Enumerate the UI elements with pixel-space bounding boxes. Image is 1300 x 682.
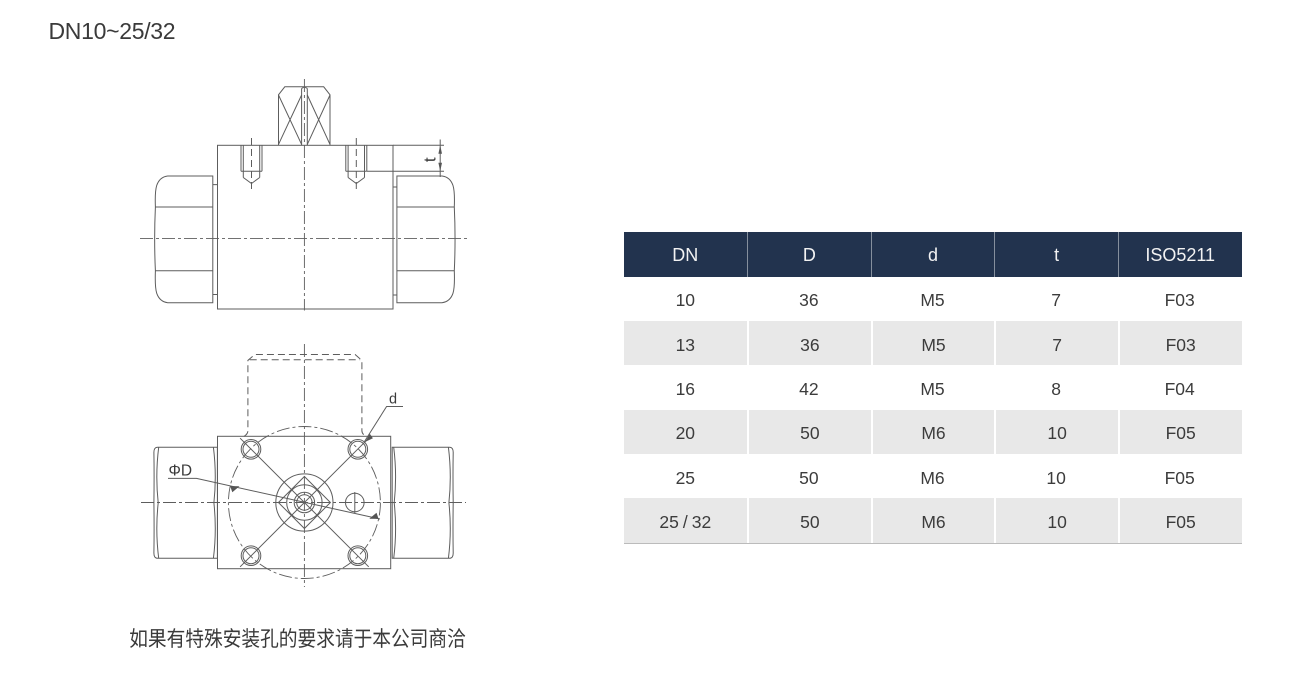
svg-text:d: d xyxy=(389,392,397,408)
svg-text:ΦD: ΦD xyxy=(169,463,193,480)
svg-text:t: t xyxy=(421,157,440,162)
